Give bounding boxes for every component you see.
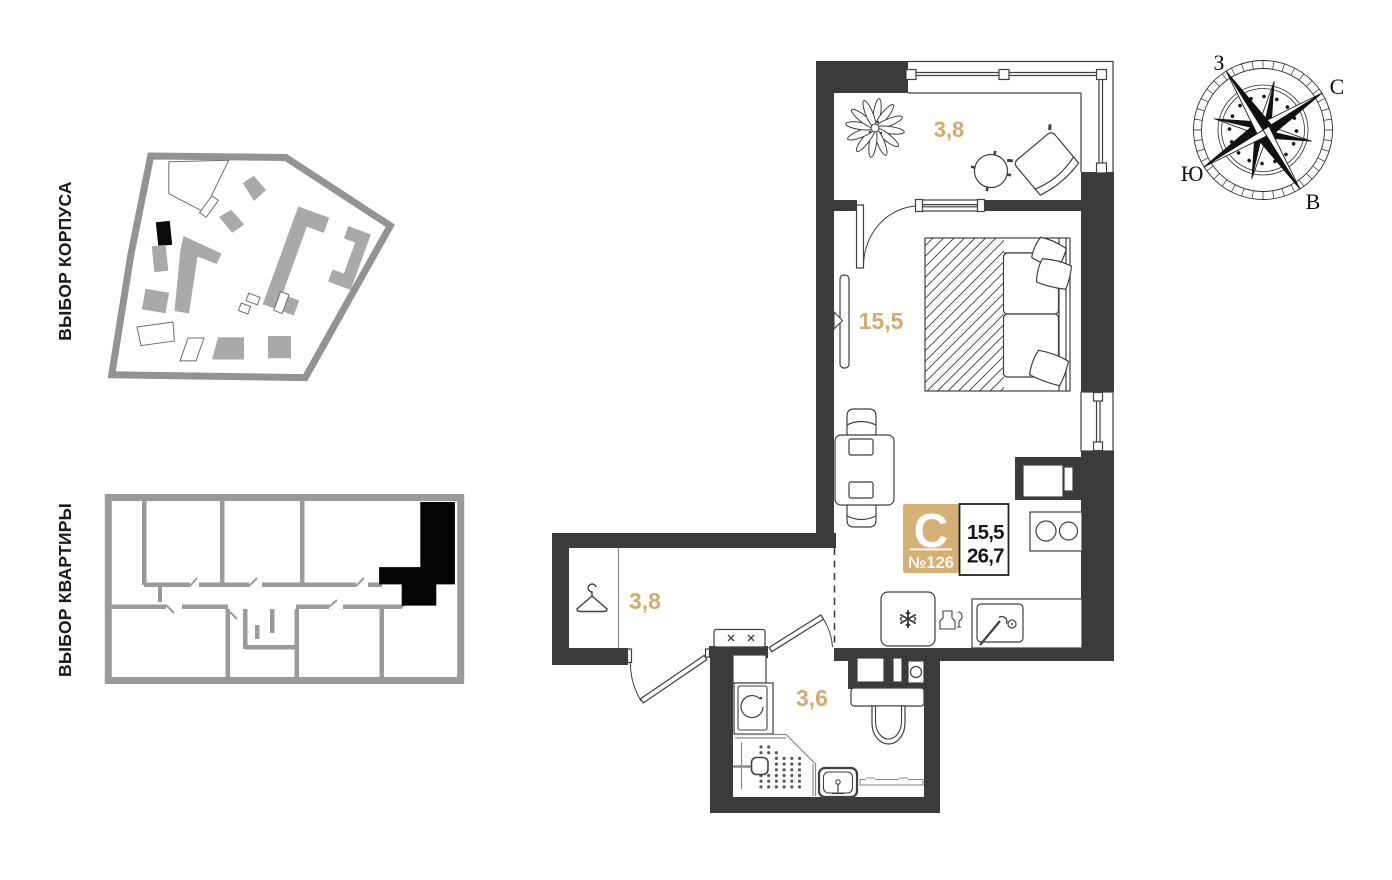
svg-text:3,8: 3,8	[934, 117, 965, 142]
svg-text:З: З	[1213, 50, 1224, 75]
svg-text:15,5: 15,5	[859, 308, 904, 334]
svg-text:Ю: Ю	[1181, 161, 1204, 186]
svg-text:ВЫБОР КВАРТИРЫ: ВЫБОР КВАРТИРЫ	[55, 503, 75, 677]
svg-text:В: В	[1306, 189, 1321, 214]
svg-text:№126: №126	[908, 554, 954, 572]
svg-text:26,7: 26,7	[967, 545, 1004, 568]
svg-text:3,8: 3,8	[629, 588, 661, 614]
svg-text:15,5: 15,5	[967, 521, 1004, 544]
svg-text:3,6: 3,6	[796, 685, 828, 711]
svg-text:С: С	[1330, 74, 1345, 99]
svg-text:ВЫБОР КОРПУСА: ВЫБОР КОРПУСА	[55, 181, 75, 341]
